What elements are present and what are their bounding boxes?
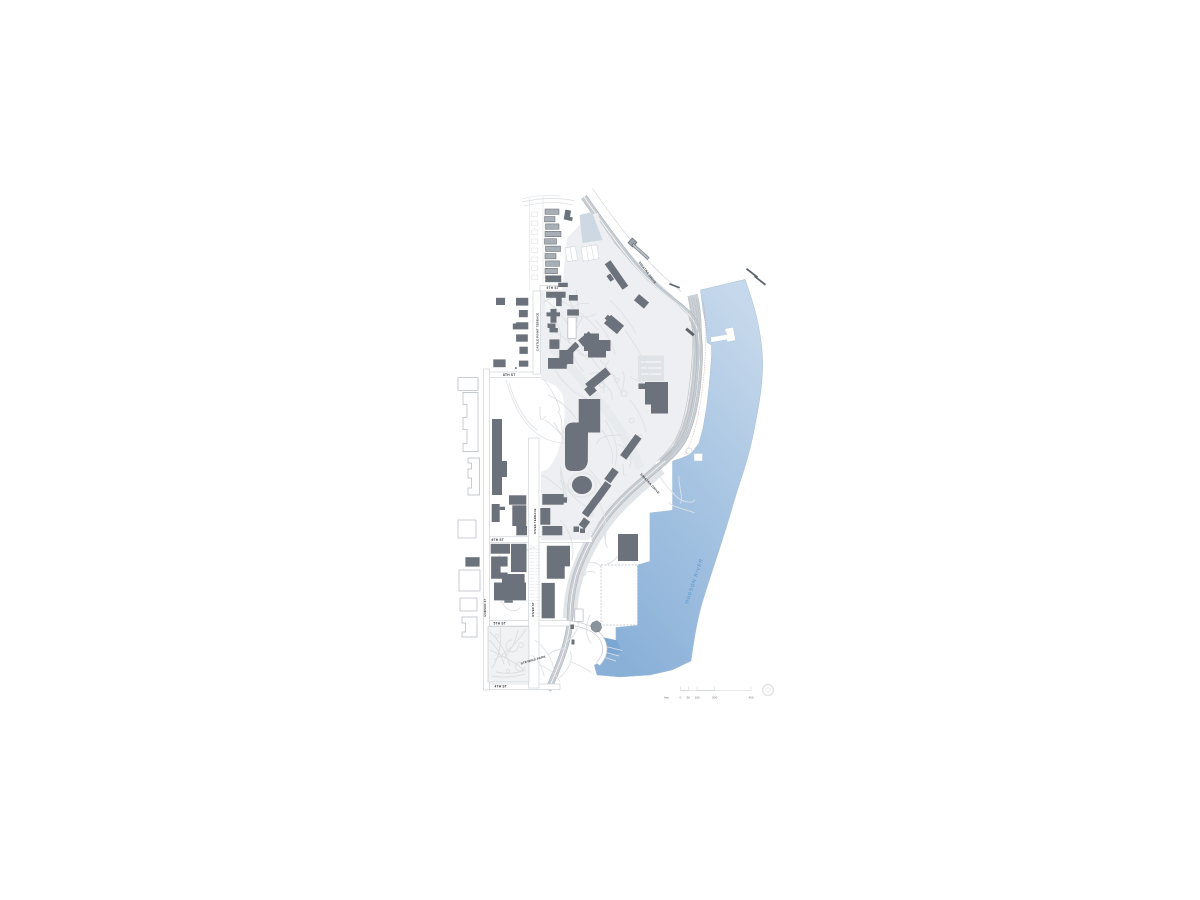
svg-text:8TH ST: 8TH ST	[503, 373, 515, 377]
svg-text:CASTLE POINT TERRACE: CASTLE POINT TERRACE	[536, 313, 540, 351]
svg-text:RIVER TERRACE: RIVER TERRACE	[533, 508, 537, 533]
svg-text:HUDSON ST: HUDSON ST	[483, 598, 487, 616]
svg-text:6TH ST: 6TH ST	[492, 538, 504, 542]
svg-text:400: 400	[749, 695, 754, 699]
svg-text:RIVER ST: RIVER ST	[531, 602, 535, 617]
svg-text:4TH ST: 4TH ST	[495, 685, 507, 689]
svg-text:200: 200	[712, 695, 717, 699]
svg-text:100: 100	[695, 695, 700, 699]
svg-text:5TH ST: 5TH ST	[494, 622, 506, 626]
svg-text:50: 50	[687, 695, 691, 699]
svg-text:feet: feet	[664, 695, 669, 699]
svg-text:9TH ST: 9TH ST	[547, 286, 559, 290]
